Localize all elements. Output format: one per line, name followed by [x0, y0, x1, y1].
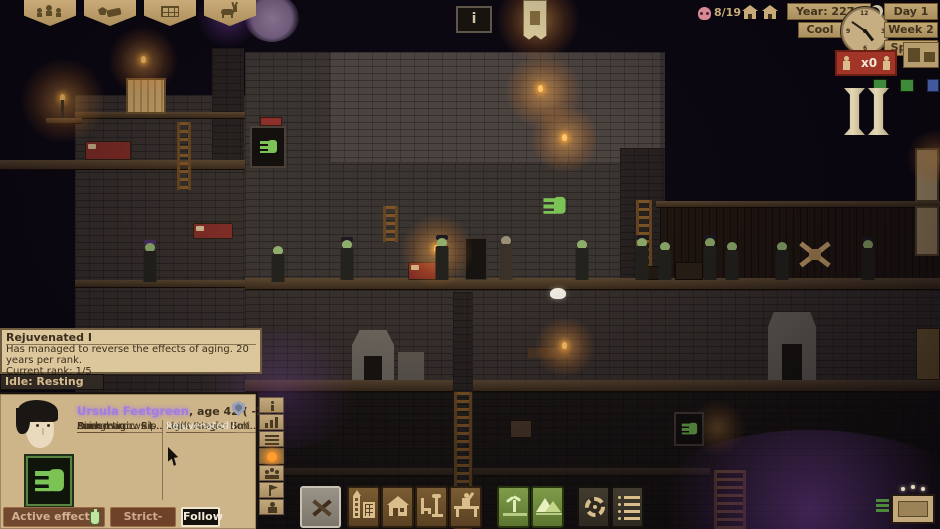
job-hand-frame[interactable]: [250, 126, 286, 168]
trait-tooltip: Rejuvenated I Has managed to reverse the…: [0, 328, 262, 374]
job-hand-icon: [260, 139, 277, 155]
stats-icon: [275, 417, 278, 428]
character-name: Ursula Feetgreen: [77, 404, 189, 418]
flask-icon: [90, 511, 100, 525]
crowd-icon-base: [265, 475, 279, 479]
farming-button[interactable]: [497, 486, 530, 528]
tab-resources[interactable]: [84, 0, 136, 26]
status-badge: Idle: Resting: [0, 374, 104, 390]
torch: [141, 56, 146, 63]
death-count: 8/19: [714, 6, 744, 19]
banner-icon: [269, 485, 271, 496]
door[interactable]: [126, 78, 166, 114]
race-emblem: [26, 456, 72, 506]
crowd-icon: [270, 468, 274, 472]
furniture-icon: [420, 494, 445, 520]
npc[interactable]: [337, 240, 357, 280]
active-effects-label: Active effects: [12, 510, 97, 523]
clock-12: 12: [860, 10, 868, 17]
clock-9: 9: [846, 28, 850, 35]
crafting-button[interactable]: [449, 486, 482, 528]
pause-column: [844, 88, 865, 135]
map-icon: [161, 6, 179, 17]
strict-mode-label: Strict-mode: [124, 510, 163, 529]
npc[interactable]: [772, 242, 792, 280]
tab-world[interactable]: [144, 0, 196, 26]
people-icon: [37, 5, 63, 17]
list-tab[interactable]: [259, 431, 284, 447]
settler-icon: [882, 56, 890, 71]
name-row: Ursula Feetgreen, age 42 ( -20 ): [77, 400, 255, 415]
tapestry: [915, 206, 939, 256]
npc[interactable]: [858, 240, 878, 280]
tab-population[interactable]: [24, 0, 76, 26]
wall-top-band: [330, 52, 660, 162]
floor: [245, 380, 940, 391]
person-tab[interactable]: [259, 499, 284, 515]
tower: [212, 48, 244, 168]
trait-item-hovered[interactable]: Rejuvenated I: [166, 420, 235, 433]
npc[interactable]: [572, 240, 592, 280]
ledge: [46, 118, 82, 123]
banner-emblem: [530, 11, 540, 25]
info-icon-bar: [271, 405, 274, 411]
toggle-green[interactable]: [900, 79, 914, 92]
rooms-icon: [387, 496, 409, 518]
follow-label: Follow: [183, 510, 223, 523]
weather-banner: Cool: [798, 22, 842, 38]
crate[interactable]: [675, 262, 703, 280]
mining-icon: [309, 496, 333, 520]
panel-side-strip: [259, 397, 286, 519]
info-button[interactable]: i: [456, 6, 492, 33]
pause-column: [868, 88, 889, 135]
race-hand-icon: [35, 467, 64, 494]
wildlife-icon: [219, 4, 241, 18]
portrait-hair-side: [16, 408, 30, 434]
stats-tab[interactable]: [259, 414, 284, 430]
npc[interactable]: [655, 242, 675, 280]
info-icon: [271, 401, 274, 404]
console-screen: [898, 501, 928, 517]
portrait-nose: [42, 428, 44, 435]
bed[interactable]: [85, 141, 131, 160]
npc[interactable]: [722, 242, 742, 280]
npc[interactable]: [700, 238, 720, 280]
npc[interactable]: [140, 243, 160, 282]
house-icon: [742, 5, 758, 19]
crowd-icon: [275, 470, 279, 474]
build-button[interactable]: [347, 486, 380, 528]
doorway: [465, 238, 487, 280]
kiln-opening: [364, 356, 382, 380]
sun-icon: [267, 452, 277, 462]
pelt-frame[interactable]: [793, 236, 837, 274]
log-bar: [876, 499, 889, 502]
settings-button[interactable]: [577, 486, 610, 528]
person-icon-body: [268, 507, 277, 513]
moon-icon: [871, 5, 883, 17]
clock-center: [863, 29, 867, 33]
build-icon: [353, 494, 375, 520]
kiln-small[interactable]: [398, 352, 424, 380]
column-divider: [162, 420, 163, 500]
torch: [538, 85, 543, 92]
portrait-brow: [35, 420, 41, 422]
floor: [0, 160, 245, 169]
tab-wildlife[interactable]: [204, 0, 256, 26]
toggle-blue[interactable]: [927, 79, 939, 92]
skull-icon: [698, 7, 711, 20]
stats-icon: [270, 420, 273, 428]
rooms-button[interactable]: [381, 486, 414, 528]
trait-item[interactable]: Aimed arc: [77, 420, 128, 433]
farming-icon: [503, 496, 527, 518]
stats-icon: [265, 423, 268, 428]
list-icon: [265, 435, 279, 437]
tooltip-title: Rejuvenated I: [6, 331, 256, 345]
strict-mode-button[interactable]: Strict-mode: [110, 507, 176, 527]
orders-button[interactable]: [611, 486, 644, 528]
beam: [656, 201, 940, 207]
blueprint-icon: [908, 48, 920, 62]
portrait[interactable]: [6, 400, 72, 456]
torch: [562, 134, 567, 141]
portrait-brow: [46, 420, 52, 422]
notify-dot: [901, 487, 905, 491]
lamp: [562, 342, 567, 349]
mining-tool-button[interactable]: [300, 486, 341, 528]
resources-icon: [98, 5, 122, 17]
banner-icon-flag: [271, 485, 278, 490]
bed[interactable]: [193, 223, 233, 239]
notify-dot: [921, 487, 925, 491]
console-button[interactable]: [891, 494, 935, 524]
tapestry: [915, 148, 939, 202]
terrain-button[interactable]: [531, 486, 564, 528]
traits-left: Lean Dark magic: Ris.. Dark magic: Sip..…: [77, 420, 159, 500]
top-left-tabs: [0, 0, 320, 30]
portrait-eye: [47, 424, 50, 427]
crowd-tab[interactable]: [259, 465, 284, 481]
hanging-banner: [523, 0, 547, 44]
job-hand-icon: [681, 422, 696, 436]
floor: [280, 468, 710, 475]
traits-right: Dark magic: Bolt.. Light magic: Smi.. Gr…: [166, 420, 254, 480]
job-hand-icon[interactable]: [543, 196, 565, 217]
list-icon: [265, 439, 279, 441]
crate[interactable]: [510, 420, 532, 438]
blueprint-button[interactable]: [903, 42, 939, 68]
ladder[interactable]: [383, 206, 398, 242]
orders-list-icon: [618, 495, 640, 521]
log-bar: [876, 504, 889, 507]
speed-box[interactable]: x0: [835, 50, 897, 76]
follow-button[interactable]: Follow: [181, 507, 220, 527]
list-icon: [265, 443, 279, 445]
banner-tab[interactable]: [259, 482, 284, 498]
notify-dot: [911, 485, 915, 489]
sun-tab[interactable]: [259, 448, 284, 464]
job-hand-frame[interactable]: [674, 412, 704, 446]
blueprint-icon: [924, 52, 935, 62]
console-panel: [872, 484, 940, 529]
npc[interactable]: [432, 238, 452, 280]
speed-value: x0: [859, 56, 879, 70]
settler-icon: [842, 56, 850, 71]
npc[interactable]: [268, 246, 288, 282]
active-effects-button[interactable]: Active effects: [3, 507, 105, 527]
workshop-band: [245, 290, 940, 382]
week-banner: Week 2: [884, 22, 938, 38]
torch-pole: [61, 100, 64, 118]
furniture-button[interactable]: [415, 486, 448, 528]
game-screen: i 8/19 Year: 2276 Cool 12 3 6 9: [0, 0, 940, 529]
bottom-toolbar: [296, 484, 656, 529]
terrain-icon: [536, 496, 562, 518]
red-sign: [260, 117, 282, 126]
kiln-opening: [782, 344, 802, 380]
top-right-hud: 8/19 Year: 2276 Cool 12 3 6 9 Day 1 Week…: [690, 0, 940, 140]
slime[interactable]: [550, 288, 566, 299]
cabinet[interactable]: [916, 328, 940, 380]
tooltip-body: Has managed to reverse the effects of ag…: [6, 345, 256, 366]
portrait-eye: [36, 424, 39, 427]
info-tab[interactable]: [259, 397, 284, 413]
crowd-icon: [265, 470, 269, 474]
table[interactable]: [528, 348, 570, 358]
npc[interactable]: [632, 238, 652, 280]
settings-gear-icon: [585, 497, 605, 517]
ladder[interactable]: [177, 122, 191, 190]
house-icon: [762, 5, 778, 19]
day-banner: Day 1: [884, 3, 938, 20]
crafting-icon: [454, 493, 479, 521]
npc[interactable]: [495, 236, 517, 280]
log-bar: [876, 509, 889, 512]
ladder[interactable]: [714, 470, 746, 529]
